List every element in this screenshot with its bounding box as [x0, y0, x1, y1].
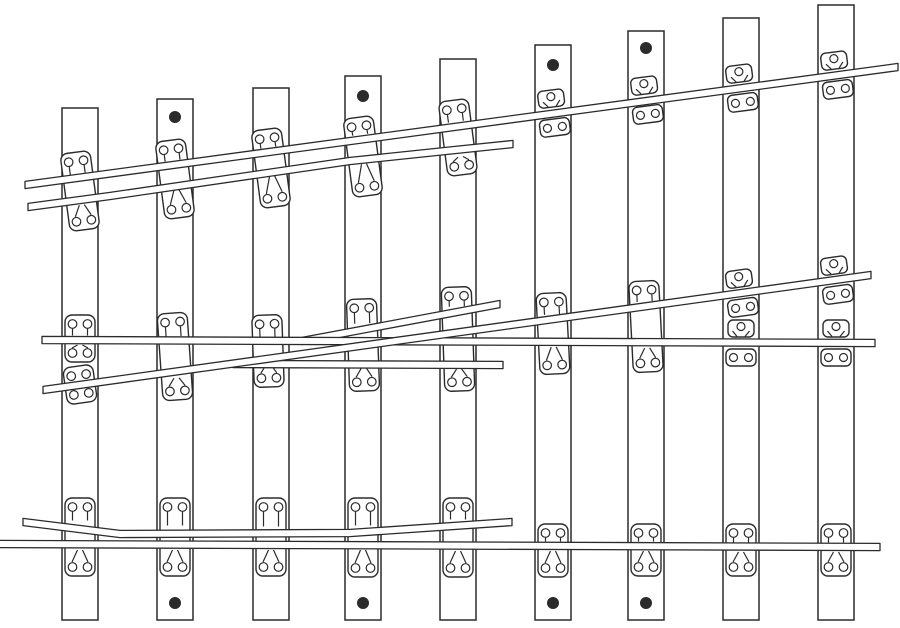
bolt-hole — [68, 349, 77, 358]
bolt-hole — [554, 297, 563, 306]
clip-mark — [352, 132, 353, 136]
bolt-hole — [729, 563, 738, 572]
bolt-hole — [259, 503, 268, 512]
bolt-hole — [539, 298, 548, 307]
bolt-hole — [744, 529, 753, 538]
bolt-hole — [464, 160, 474, 170]
bolt-hole — [367, 377, 376, 386]
bolt-hole — [829, 259, 838, 268]
bolt-hole — [79, 155, 89, 165]
tie-plate — [252, 314, 284, 387]
bolt-hole — [68, 563, 77, 572]
bolt-hole — [366, 503, 375, 512]
bolt-hole — [178, 563, 187, 572]
bolt-hole — [347, 122, 357, 132]
bolt-hole — [543, 124, 552, 133]
bolt-hole — [636, 111, 645, 120]
bolt-hole — [558, 122, 567, 131]
spike-marker-dot — [640, 597, 652, 609]
clip-mark — [367, 130, 368, 134]
bolt-hole — [634, 529, 643, 538]
tie-plate — [538, 524, 568, 577]
bolt-hole — [647, 285, 656, 294]
bolt-hole — [446, 564, 455, 573]
bolt-hole — [541, 529, 550, 538]
bolt-hole — [84, 388, 94, 398]
bolt-hole — [730, 354, 738, 362]
bolt-hole — [461, 564, 470, 573]
bolt-hole — [744, 563, 753, 572]
bolt-hole — [255, 320, 264, 329]
tie-plate — [65, 498, 95, 576]
bolt-hole — [270, 319, 279, 328]
bolt-hole — [64, 157, 74, 167]
bolt-hole — [167, 205, 177, 215]
spike-marker-dot — [357, 597, 369, 609]
bolt-hole — [448, 378, 457, 387]
tie-plate — [443, 498, 473, 577]
bolt-hole — [463, 377, 472, 386]
bolt-hole — [351, 503, 360, 512]
bolt-hole — [66, 371, 76, 381]
bolt-hole — [370, 181, 380, 191]
bolt-hole — [639, 79, 648, 88]
bolt-hole — [257, 374, 266, 383]
spike-marker-dot — [547, 597, 559, 609]
bolt-hole — [731, 304, 740, 313]
bolt-hole — [460, 291, 469, 300]
clip-mark — [275, 142, 276, 147]
bolt-hole — [175, 317, 184, 326]
bolt-hole — [362, 120, 372, 130]
bolt-hole — [826, 291, 835, 300]
bolt-hole — [81, 369, 91, 379]
bolt-hole — [461, 503, 470, 512]
spike-marker-dot — [547, 59, 559, 71]
bolt-hole — [366, 564, 375, 573]
clip-mark — [180, 326, 181, 336]
bolt-hole — [457, 103, 467, 113]
bolt-hole — [180, 386, 189, 395]
clip-mark — [260, 144, 261, 149]
bolt-hole — [278, 192, 288, 202]
bolt-hole — [68, 503, 77, 512]
bolt-hole — [746, 302, 755, 311]
bolt-hole — [731, 99, 740, 108]
bolt-hole — [165, 387, 174, 396]
bolt-hole — [832, 323, 840, 331]
bolt-hole — [634, 563, 643, 572]
bolt-hole — [558, 360, 567, 369]
bolt-hole — [274, 563, 283, 572]
bolt-hole — [543, 361, 552, 370]
spike-marker-dot — [357, 90, 369, 102]
bolt-hole — [255, 134, 265, 144]
bolt-hole — [651, 109, 660, 118]
bolt-hole — [259, 563, 268, 572]
bolt-hole — [72, 217, 82, 227]
bolt-hole — [83, 320, 92, 329]
bolt-hole — [825, 354, 833, 362]
bolt-hole — [161, 318, 170, 327]
bolt-hole — [174, 143, 184, 153]
turnout-diagram-svg — [0, 0, 900, 628]
bolt-hole — [83, 349, 92, 358]
bolt-hole — [270, 132, 280, 142]
tie-plate — [157, 312, 193, 401]
tie-plate — [348, 498, 378, 577]
tie-plate — [536, 292, 570, 374]
bolt-hole — [824, 529, 833, 538]
bolt-hole — [546, 92, 555, 101]
bolt-hole — [83, 563, 92, 572]
bolt-hole — [446, 503, 455, 512]
bolt-hole — [840, 354, 848, 362]
bolt-hole — [352, 378, 361, 387]
bolt-hole — [841, 84, 850, 93]
bolt-hole — [734, 272, 743, 281]
bolt-hole — [541, 564, 550, 573]
bolt-hole — [745, 354, 753, 362]
bolt-hole — [737, 323, 745, 331]
bolt-hole — [839, 529, 848, 538]
bolt-hole — [272, 373, 281, 382]
bolt-hole — [182, 203, 192, 213]
bolt-hole — [839, 563, 848, 572]
bolt-hole — [365, 303, 374, 312]
bolt-hole — [442, 105, 452, 115]
bolt-hole — [163, 503, 172, 512]
bolt-hole — [449, 162, 459, 172]
bolt-hole — [69, 390, 79, 400]
bolt-hole — [263, 194, 273, 204]
bolt-hole — [556, 564, 565, 573]
bolt-hole — [829, 54, 838, 63]
bolt-hole — [746, 97, 755, 106]
bolt-hole — [159, 145, 169, 155]
spike-marker-dot — [640, 42, 652, 54]
turnout-plan-figure — [0, 0, 900, 628]
spike-marker-dot — [169, 597, 181, 609]
bolt-hole — [68, 320, 77, 329]
bolt-hole — [649, 529, 658, 538]
bolt-hole — [651, 358, 660, 367]
bolt-hole — [87, 215, 97, 225]
bolt-hole — [178, 503, 187, 512]
bolt-hole — [841, 289, 850, 298]
bolt-hole — [445, 292, 454, 301]
bolt-hole — [649, 563, 658, 572]
bolt-hole — [734, 67, 743, 76]
clip-mark — [165, 327, 166, 337]
tie-plate — [629, 280, 664, 372]
bolt-hole — [556, 529, 565, 538]
bolt-hole — [274, 503, 283, 512]
bolt-hole — [824, 563, 833, 572]
bolt-hole — [729, 529, 738, 538]
bolt-hole — [83, 503, 92, 512]
bolt-hole — [355, 183, 365, 193]
bolt-hole — [350, 304, 359, 313]
bolt-hole — [351, 564, 360, 573]
bolt-hole — [826, 86, 835, 95]
bolt-hole — [632, 286, 641, 295]
spike-marker-dot — [169, 111, 181, 123]
bolt-hole — [163, 563, 172, 572]
bolt-hole — [636, 359, 645, 368]
